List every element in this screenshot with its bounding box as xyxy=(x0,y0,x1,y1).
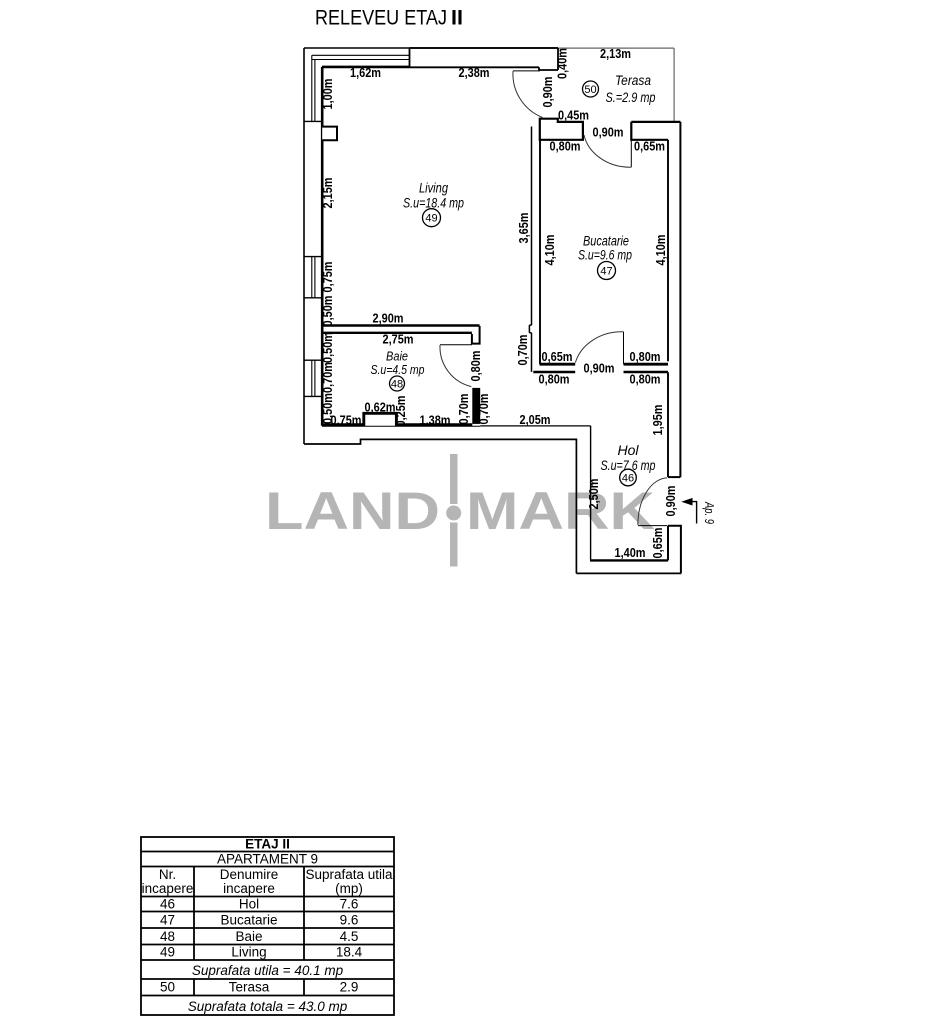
svg-text:49: 49 xyxy=(160,945,175,960)
svg-text:ETAJ II: ETAJ II xyxy=(245,837,290,852)
svg-text:50: 50 xyxy=(160,980,175,995)
svg-text:2,38m: 2,38m xyxy=(459,65,490,80)
svg-text:II: II xyxy=(451,6,463,30)
svg-text:0,90m: 0,90m xyxy=(663,486,678,517)
svg-text:Hol: Hol xyxy=(618,443,640,458)
svg-text:2,50m: 2,50m xyxy=(586,479,601,510)
svg-text:2,15m: 2,15m xyxy=(320,178,335,209)
svg-text:RELEVEU ETAJ: RELEVEU ETAJ xyxy=(315,6,447,30)
svg-text:2.9: 2.9 xyxy=(340,980,359,995)
svg-text:0,70m: 0,70m xyxy=(456,394,471,425)
svg-text:0,75m: 0,75m xyxy=(331,413,362,428)
svg-text:Terasa: Terasa xyxy=(229,980,270,995)
svg-text:3,65m: 3,65m xyxy=(516,213,531,244)
svg-text:4,10m: 4,10m xyxy=(653,235,668,266)
svg-text:0,65m: 0,65m xyxy=(650,528,665,559)
svg-text:0,80m: 0,80m xyxy=(468,351,483,382)
svg-text:4,10m: 4,10m xyxy=(542,235,557,266)
svg-text:S.=2.9 mp: S.=2.9 mp xyxy=(606,90,656,105)
svg-text:46: 46 xyxy=(622,472,634,484)
svg-text:Baie: Baie xyxy=(235,929,262,944)
svg-text:9.6: 9.6 xyxy=(340,913,359,928)
svg-text:1,00m: 1,00m xyxy=(320,79,335,110)
svg-text:Living: Living xyxy=(231,945,266,960)
svg-text:(mp): (mp) xyxy=(335,881,363,896)
svg-text:0,80m: 0,80m xyxy=(630,349,661,364)
svg-text:Living: Living xyxy=(419,180,448,196)
svg-text:0,50m: 0,50m xyxy=(320,296,335,327)
svg-text:Bucatarie: Bucatarie xyxy=(220,913,277,928)
svg-text:Ap. 9: Ap. 9 xyxy=(702,501,716,524)
svg-text:1,38m: 1,38m xyxy=(420,413,451,428)
svg-text:0,65m: 0,65m xyxy=(634,139,665,154)
svg-text:Nr.: Nr. xyxy=(159,867,176,882)
svg-text:Suprafata totala = 43.0 mp: Suprafata totala = 43.0 mp xyxy=(188,999,348,1014)
svg-text:Suprafata utila: Suprafata utila xyxy=(305,867,393,882)
svg-text:0,62m: 0,62m xyxy=(365,400,396,415)
svg-text:0,45m: 0,45m xyxy=(558,108,589,123)
svg-text:4.5: 4.5 xyxy=(340,929,359,944)
svg-text:0,90m: 0,90m xyxy=(540,77,555,108)
svg-text:7.6: 7.6 xyxy=(340,897,359,912)
svg-text:48: 48 xyxy=(391,378,403,390)
svg-text:2,75m: 2,75m xyxy=(383,332,414,347)
svg-text:1,95m: 1,95m xyxy=(650,405,665,436)
svg-text:Terasa: Terasa xyxy=(615,73,651,88)
svg-text:0,80m: 0,80m xyxy=(539,372,570,387)
svg-text:Suprafata utila = 40.1 mp: Suprafata utila = 40.1 mp xyxy=(192,963,344,978)
svg-text:Bucatarie: Bucatarie xyxy=(583,234,629,249)
svg-text:APARTAMENT 9: APARTAMENT 9 xyxy=(217,852,318,867)
svg-text:2,05m: 2,05m xyxy=(520,412,551,427)
svg-text:1,62m: 1,62m xyxy=(350,65,381,80)
svg-text:46: 46 xyxy=(160,897,175,912)
svg-text:incapere: incapere xyxy=(142,881,194,896)
svg-text:2,90m: 2,90m xyxy=(373,311,404,326)
svg-text:2,13m: 2,13m xyxy=(600,46,631,61)
svg-text:MARK: MARK xyxy=(466,482,655,541)
svg-text:LAND: LAND xyxy=(265,482,440,541)
svg-text:Denumire: Denumire xyxy=(220,867,279,882)
svg-text:47: 47 xyxy=(160,913,175,928)
svg-text:0,75m: 0,75m xyxy=(320,262,335,293)
svg-text:1,40m: 1,40m xyxy=(615,545,646,560)
svg-text:Hol: Hol xyxy=(239,897,259,912)
svg-text:0,90m: 0,90m xyxy=(593,125,624,140)
svg-text:0,90m: 0,90m xyxy=(584,361,615,376)
svg-text:0,50m: 0,50m xyxy=(320,332,335,363)
svg-text:0,80m: 0,80m xyxy=(550,139,581,154)
svg-text:S.u=9.6 mp: S.u=9.6 mp xyxy=(578,248,632,263)
svg-text:0,65m: 0,65m xyxy=(542,349,573,364)
svg-text:S.u=18.4 mp: S.u=18.4 mp xyxy=(403,195,464,211)
svg-text:S.u=4.5 mp: S.u=4.5 mp xyxy=(371,362,425,377)
svg-text:0,25m: 0,25m xyxy=(393,396,408,427)
svg-text:0,40m: 0,40m xyxy=(555,48,570,79)
svg-text:48: 48 xyxy=(160,929,175,944)
svg-text:S.u=7.6 mp: S.u=7.6 mp xyxy=(601,458,656,473)
svg-text:18.4: 18.4 xyxy=(336,945,363,960)
svg-text:47: 47 xyxy=(600,265,612,277)
svg-text:0,80m: 0,80m xyxy=(630,372,661,387)
svg-text:0,70m: 0,70m xyxy=(515,335,530,366)
svg-text:incapere: incapere xyxy=(223,881,275,896)
svg-text:0,70m: 0,70m xyxy=(476,394,491,425)
svg-text:49: 49 xyxy=(425,213,437,225)
svg-text:50: 50 xyxy=(584,84,596,96)
svg-text:0,70m: 0,70m xyxy=(320,362,335,393)
